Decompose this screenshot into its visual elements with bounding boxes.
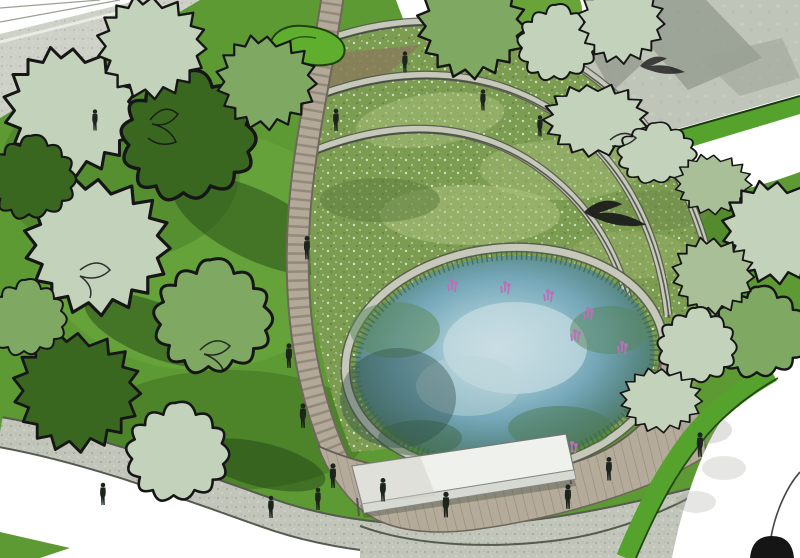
pond-reed-mat xyxy=(570,306,650,354)
plaza-dapple xyxy=(702,456,746,480)
terrace-dark-patch xyxy=(320,178,440,222)
plaza-dapple xyxy=(676,491,716,513)
illustration-canvas xyxy=(0,0,800,558)
park-rendering xyxy=(0,0,800,558)
